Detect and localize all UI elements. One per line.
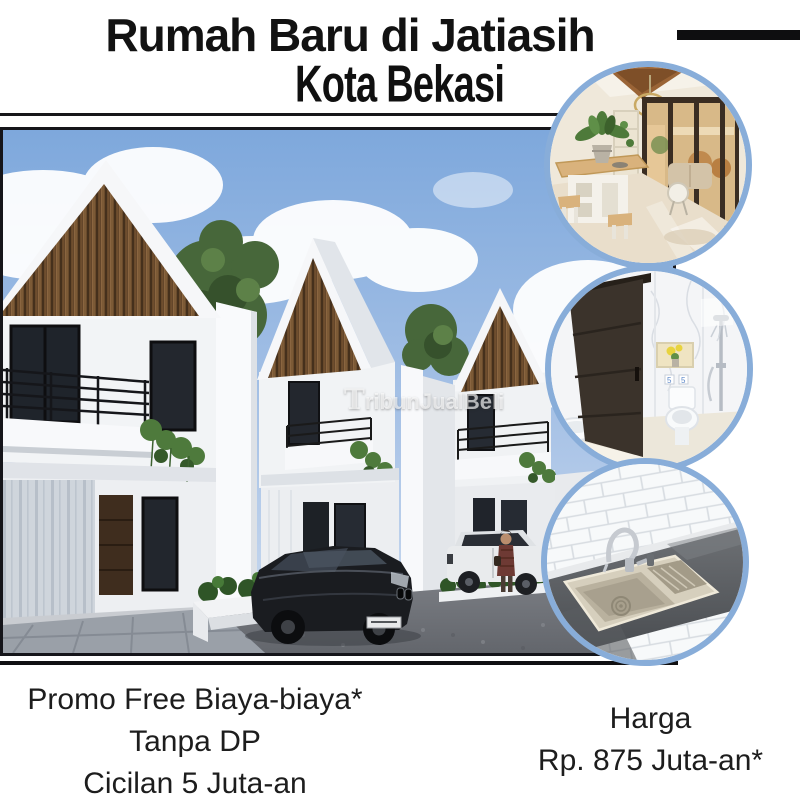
promo-line-1: Promo Free Biaya-biaya* <box>0 679 390 721</box>
top-rule <box>0 113 562 116</box>
promo-line-2: Tanpa DP <box>0 721 390 763</box>
promo-line-3: Cicilan 5 Juta-an <box>0 763 390 800</box>
dining-room-illustration <box>550 67 746 263</box>
inset-photo-kitchen-sink <box>541 458 749 666</box>
top-right-black-bar <box>677 30 800 40</box>
price-label: Harga <box>528 698 773 740</box>
promo-text: Promo Free Biaya-biaya* Tanpa DP Cicilan… <box>0 679 390 800</box>
svg-text:5: 5 <box>681 376 686 385</box>
price-value: Rp. 875 Juta-an* <box>528 740 773 782</box>
kitchen-sink-illustration <box>547 464 743 660</box>
price-block: Harga Rp. 875 Juta-an* <box>528 698 773 782</box>
bathroom-illustration: 5 5 <box>551 271 747 467</box>
bottom-rule <box>0 661 678 665</box>
page-subtitle-text: Kota Bekasi <box>295 58 504 110</box>
poster-canvas: Rumah Baru di Jatiasih Kota Bekasi <box>0 0 800 800</box>
inset-photo-dining-room <box>544 61 752 269</box>
page-title: Rumah Baru di Jatiasih <box>25 10 675 61</box>
watermark: TribunJualBeli <box>344 383 544 416</box>
inset-photo-bathroom: 5 5 <box>545 265 753 473</box>
svg-text:5: 5 <box>667 376 672 385</box>
